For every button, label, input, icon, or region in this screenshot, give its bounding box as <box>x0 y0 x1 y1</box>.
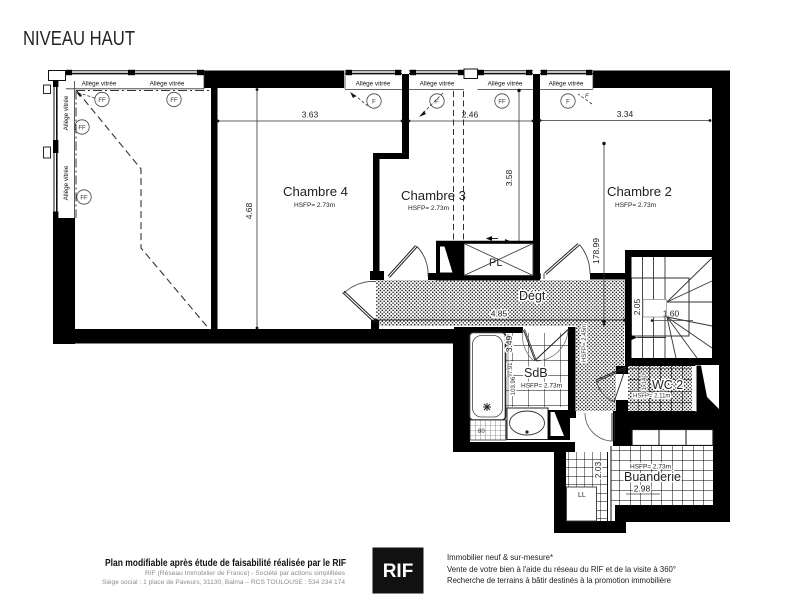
svg-text:F: F <box>566 100 570 106</box>
svg-text:NIVEAU HAUT: NIVEAU HAUT <box>23 28 135 50</box>
svg-text:PL: PL <box>489 257 502 269</box>
svg-text:80: 80 <box>478 429 485 435</box>
svg-text:FF: FF <box>170 98 178 104</box>
svg-text:4.68: 4.68 <box>244 202 254 219</box>
svg-text:2.98: 2.98 <box>634 484 651 494</box>
svg-text:Vente de votre bien à l'ai: Vente de votre bien à l'aide du réseau d… <box>447 565 676 574</box>
svg-text:F: F <box>372 100 376 106</box>
svg-text:2.05: 2.05 <box>632 298 642 315</box>
svg-text:Allège vitrée: Allège vitrée <box>549 81 584 88</box>
svg-text:3.63: 3.63 <box>302 110 319 120</box>
svg-text:Allège vitrée: Allège vitrée <box>82 81 117 88</box>
svg-text:F: F <box>585 94 589 100</box>
svg-text:HSFP= 2.11m: HSFP= 2.11m <box>633 394 670 400</box>
svg-text:HSFP= 2.73m: HSFP= 2.73m <box>294 202 335 209</box>
svg-text:Allège vitrée: Allège vitrée <box>488 81 523 88</box>
svg-text:Siège social : 1 place de P: Siège social : 1 place de Paveurs, 31130… <box>102 579 345 586</box>
svg-text:3.49: 3.49 <box>504 335 514 352</box>
svg-text:SdB: SdB <box>524 366 548 380</box>
svg-text:FF: FF <box>498 100 506 106</box>
svg-text:Allège vitrée: Allège vitrée <box>63 95 70 130</box>
svg-text:3.58: 3.58 <box>504 169 514 186</box>
svg-text:Allège vitrée: Allège vitrée <box>63 165 70 200</box>
svg-text:91x140: 91x140 <box>642 373 648 393</box>
svg-text:WC 2: WC 2 <box>652 378 683 392</box>
svg-text:HSFP= 2.45m: HSFP= 2.45m <box>582 324 588 362</box>
svg-text:Plan modifiable après étude de: Plan modifiable après étude de faisabili… <box>105 557 346 569</box>
svg-text:FF: FF <box>80 196 88 202</box>
svg-text:HSFP= 2.73m: HSFP= 2.73m <box>521 383 562 390</box>
svg-text:RIF: RIF <box>383 561 414 582</box>
svg-text:Immobilier neuf & sur-mesure*: Immobilier neuf & sur-mesure* <box>447 553 553 562</box>
svg-text:97.91: 97.91 <box>508 362 514 378</box>
svg-text:178.99: 178.99 <box>591 238 601 264</box>
svg-text:Recherche de terrains à bât: Recherche de terrains à bâtir destinés à… <box>447 576 671 585</box>
svg-text:1.60: 1.60 <box>663 309 680 319</box>
svg-text:HSFP= 2.73m: HSFP= 2.73m <box>408 205 449 212</box>
svg-text:3.34: 3.34 <box>617 109 634 119</box>
svg-text:Allège vitrée: Allège vitrée <box>356 81 391 88</box>
svg-text:Allège vitrée: Allège vitrée <box>150 81 185 88</box>
svg-text:Buanderie: Buanderie <box>624 470 681 484</box>
svg-text:LL: LL <box>578 492 586 499</box>
svg-text:Allège vitrée: Allège vitrée <box>420 81 455 88</box>
svg-text:Chambre 4: Chambre 4 <box>283 185 348 199</box>
svg-text:2.46: 2.46 <box>462 110 479 120</box>
svg-text:HSFP= 2.73m: HSFP= 2.73m <box>615 202 656 209</box>
svg-text:Chambre 2: Chambre 2 <box>607 185 672 199</box>
svg-text:103.96: 103.96 <box>511 376 517 395</box>
svg-text:2.03: 2.03 <box>593 461 603 478</box>
svg-text:4.85: 4.85 <box>491 309 508 319</box>
svg-text:FF: FF <box>98 98 106 104</box>
svg-text:RIF (Réseau Immobilier de Fran: RIF (Réseau Immobilier de France) - Soci… <box>145 570 346 577</box>
svg-text:FF: FF <box>78 126 86 132</box>
svg-text:Chambre 3: Chambre 3 <box>401 189 466 203</box>
svg-text:Dégt: Dégt <box>519 289 546 303</box>
